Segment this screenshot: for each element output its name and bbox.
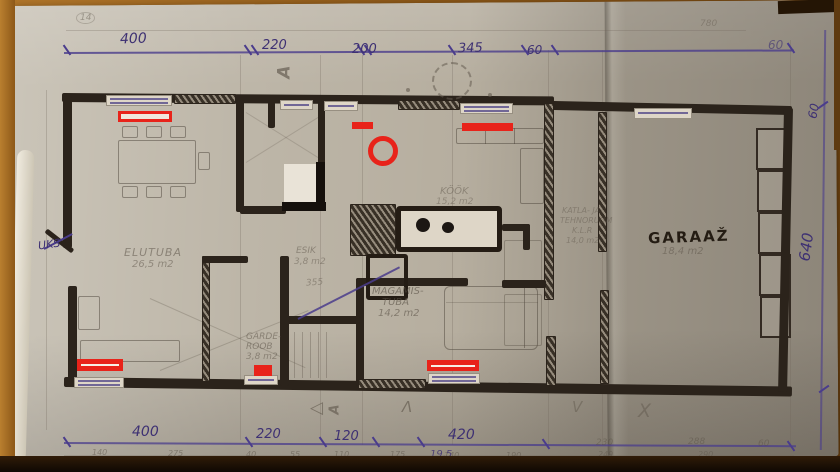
- wall-bedroom-top: [502, 280, 546, 288]
- wall-wc-top: [280, 316, 360, 324]
- stair-step: [326, 332, 327, 378]
- photo-of-floor-plan: UKS A ◁ A Λ V X ELUTUBA 26,5 m2 ESIK 3,8…: [0, 0, 840, 472]
- stair-step: [302, 332, 303, 378]
- dim-top-345: 345: [458, 41, 483, 57]
- stair-step: [310, 332, 311, 378]
- room-area-tehnoruum: 14,0 m2: [566, 236, 599, 245]
- dim-bottom-220: 220: [256, 427, 281, 442]
- wall-tehnoruum: [598, 112, 607, 252]
- marker-dot: [406, 88, 410, 92]
- wall-tehnoruum: [600, 290, 609, 384]
- dim-bottom-120: 120: [334, 429, 359, 444]
- desk-wood-right: [834, 0, 840, 150]
- red-highlight-window-bottom-left: [77, 359, 123, 371]
- dim-bottom-400: 400: [132, 424, 159, 440]
- chimney-black-horizontal: [282, 202, 326, 211]
- room-label-garderoob-1: GARDE-: [246, 332, 281, 342]
- stair-step: [294, 332, 295, 378]
- chair: [146, 126, 162, 138]
- desk-wood-left: [0, 0, 15, 472]
- wall-hatch: [398, 100, 460, 110]
- kitchen-cabinet: [520, 148, 544, 204]
- dim-top-far-60: 60: [768, 38, 783, 52]
- wall-garderoob-left: [202, 256, 210, 382]
- red-highlight-garderoob: [254, 365, 272, 376]
- pencil-780: 780: [700, 19, 717, 29]
- wall-hatch: [174, 94, 236, 104]
- window: [428, 373, 480, 384]
- armchair: [78, 296, 100, 330]
- dimension-line-left: [46, 90, 47, 430]
- wall-left: [68, 286, 77, 386]
- chair: [170, 186, 186, 198]
- red-highlight-window-bottom-center: [427, 360, 479, 371]
- room-label-elutuba: ELUTUBA: [124, 246, 182, 259]
- counter-divider: [514, 128, 515, 144]
- marker-lambda: Λ: [402, 398, 412, 416]
- wall-stub: [268, 102, 275, 128]
- wall-hall-bottom: [240, 206, 286, 214]
- stair-step: [318, 332, 319, 378]
- section-marker-triangle: ◁: [310, 398, 323, 418]
- chair: [198, 152, 210, 170]
- section-marker-a-top: A: [275, 65, 295, 78]
- room-label-magamistuba-1: MAGAMIS-: [372, 286, 424, 297]
- section-marker-a-bottom: A: [328, 404, 343, 414]
- dim-pencil-288: 288: [688, 437, 705, 447]
- marker-x: X: [638, 400, 651, 422]
- chair: [170, 126, 186, 138]
- red-highlight-vent: [352, 122, 373, 129]
- window: [74, 377, 124, 388]
- pencil-dim-line-top: [66, 30, 746, 31]
- chair: [146, 186, 162, 198]
- room-label-tehnoruum-3: K.L.R: [572, 226, 592, 235]
- wall-hall-left: [236, 100, 244, 212]
- room-label-magamistuba-2: TUBA: [382, 297, 409, 308]
- room-label-kook: KÖÖK: [440, 186, 469, 197]
- window: [324, 101, 358, 111]
- red-circle-mark: [368, 136, 398, 166]
- cabinet: [504, 294, 542, 346]
- window: [106, 95, 172, 106]
- wall-garderoob-top: [202, 256, 248, 263]
- wall-divider: [318, 102, 325, 168]
- marker-v: V: [572, 398, 582, 416]
- room-label-tehnoruum-1: KATLA- JA: [562, 206, 600, 215]
- room-label-garaaz: GARAAŽ: [648, 227, 730, 248]
- wall-garage-left: [544, 103, 554, 300]
- red-highlight-window-top-left: [118, 111, 172, 122]
- room-area-kook: 15,2 m2: [436, 197, 473, 207]
- desk-wood-bottom: [0, 456, 840, 472]
- wall-garage-left: [546, 336, 556, 386]
- room-area-garaaz: 18,4 m2: [662, 246, 704, 257]
- room-label-tehnoruum-2: TEHNORUUM: [560, 216, 612, 225]
- dim-bottom-420: 420: [448, 427, 475, 443]
- dim-pencil-230: 230: [596, 438, 613, 448]
- room-area-elutuba: 26,5 m2: [132, 259, 174, 270]
- room-area-garderoob: 3,8 m2: [246, 352, 278, 362]
- dim-pencil-60: 60: [758, 439, 769, 449]
- section-marker-c: [432, 62, 472, 100]
- wall-left: [63, 96, 72, 248]
- wall-bedroom-left: [356, 278, 364, 386]
- room-label-garderoob-2: ROOB: [246, 342, 273, 352]
- window: [244, 375, 278, 385]
- room-area-esik: 3,8 m2: [294, 257, 326, 267]
- dim-top-200: 200: [352, 42, 377, 57]
- dim-top-220: 220: [262, 38, 287, 53]
- window: [280, 100, 313, 110]
- window: [634, 108, 692, 119]
- window: [460, 103, 513, 114]
- chair: [122, 186, 138, 198]
- wall-hatch: [358, 379, 426, 389]
- dim-top-60: 60: [527, 43, 542, 57]
- dining-table: [118, 140, 196, 184]
- dim-right-60: 60: [805, 102, 821, 119]
- red-highlight-window-top-right: [462, 123, 513, 131]
- chimney-white-box: [284, 164, 318, 204]
- stove-burner: [416, 218, 430, 232]
- room-label-esik: ESIK: [296, 246, 316, 256]
- pencil-dim-355: 355: [306, 277, 324, 288]
- wall-stub: [523, 224, 530, 250]
- desk-wood-top-right: [778, 0, 840, 14]
- kitchen-block: [350, 204, 396, 256]
- stove-burner: [442, 222, 454, 233]
- room-area-magamistuba: 14,2 m2: [378, 308, 420, 319]
- chair: [122, 126, 138, 138]
- dim-top-400: 400: [120, 31, 147, 48]
- marker-dot: [488, 93, 492, 97]
